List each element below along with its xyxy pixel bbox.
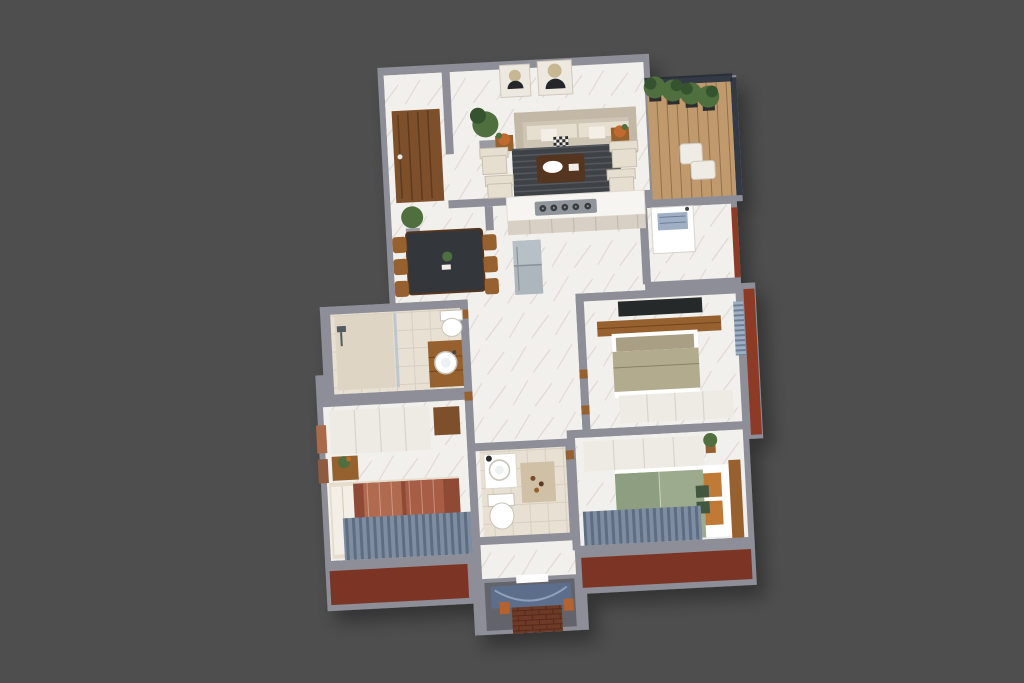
bed-middle (612, 330, 701, 398)
bath-rug (520, 461, 556, 503)
refrigerator (513, 240, 544, 295)
wall-art-frame-1 (499, 64, 531, 98)
bedroom-left-door (433, 406, 460, 435)
curtains-right (583, 506, 703, 546)
vanity-small (484, 453, 518, 489)
vanity-main (428, 340, 464, 388)
wardrobe-middle (619, 390, 734, 424)
entry-foyer (392, 109, 445, 203)
floor-plan-render (0, 0, 1024, 683)
bedroom-left (315, 404, 473, 562)
shower-tray (334, 313, 396, 390)
terrace-floor-left (330, 564, 470, 605)
wall-art-frame-2 (537, 60, 573, 96)
dining-table (406, 229, 485, 295)
toilet-main (440, 310, 463, 337)
passage-floor (480, 540, 576, 579)
wardrobe-right (583, 435, 704, 471)
side-table (332, 455, 359, 480)
curtains-left (343, 512, 473, 561)
coffee-table (536, 153, 585, 183)
shower-head (337, 326, 346, 332)
wash-unit-basin (657, 212, 688, 231)
porch-step (516, 574, 548, 584)
wardrobe-left (329, 406, 431, 455)
porch-brick (512, 605, 563, 634)
apartment (297, 49, 772, 644)
utility-room (651, 206, 695, 254)
